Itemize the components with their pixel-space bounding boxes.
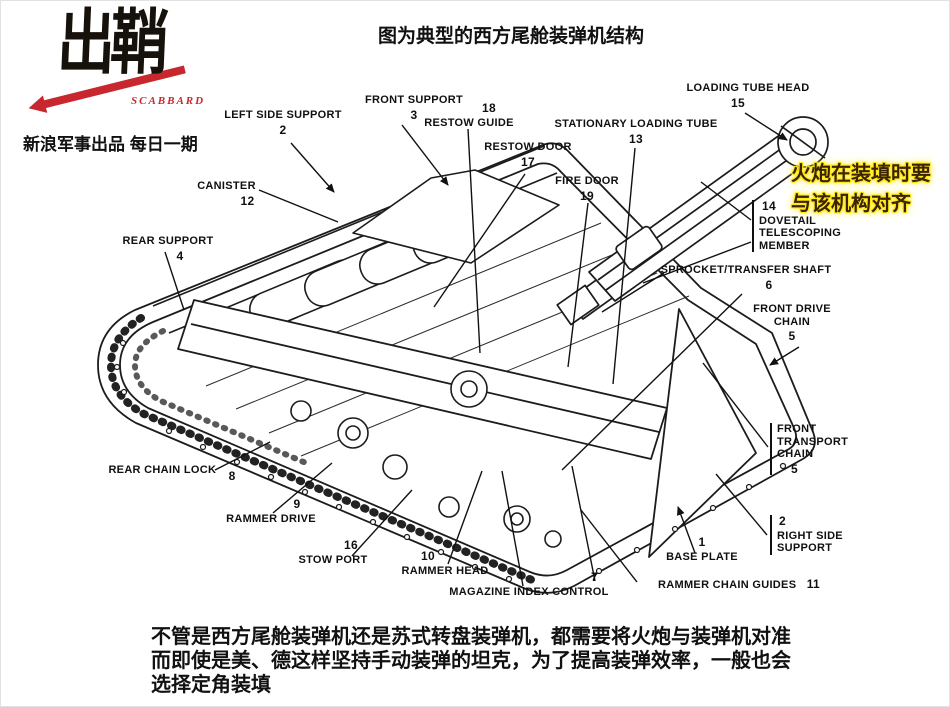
- infographic-page: 出鞘 SCABBARD 新浪军事出品 每日一期 图为典型的西方尾舱装弹机结构 火…: [0, 0, 950, 707]
- label-stationary-loading-tube: STATIONARY LOADING TUBE 13: [546, 118, 726, 145]
- highlight-note-line: 火炮在装填时要: [791, 159, 949, 189]
- label-rammer-chain-guides: RAMMER CHAIN GUIDES 11: [634, 578, 844, 592]
- logo-tagline: 新浪军事出品 每日一期: [23, 130, 198, 155]
- label-canister: CANISTER 12: [189, 180, 264, 207]
- label-rammer-head: RAMMER HEAD 10: [398, 550, 492, 577]
- footer-paragraph: 不管是西方尾舱装弹机还是苏式转盘装弹机，都需要将火炮与装弹机对准 而即使是美、德…: [151, 625, 851, 697]
- logo-wordmark: 出鞘: [56, 7, 165, 80]
- footer-line: 不管是西方尾舱装弹机还是苏式转盘装弹机，都需要将火炮与装弹机对准: [151, 625, 851, 649]
- label-left-side-support: LEFT SIDE SUPPORT 2: [219, 109, 347, 136]
- logo-latin-name: SCABBARD: [131, 95, 205, 107]
- label-stow-port: STOW PORT 16: [294, 539, 372, 566]
- footer-line: 而即使是美、德这样坚持手动装弹的坦克，为了提高装弹效率，一般也会: [151, 649, 851, 673]
- scabbard-logo: 出鞘 SCABBARD: [31, 5, 221, 127]
- label-right-side-support: RIGHT SIDE SUPPORT 2: [770, 515, 843, 555]
- label-dovetail-telescoping-member: DOVETAIL TELESCOPING MEMBER 14: [752, 200, 841, 252]
- page-title: 图为典型的西方尾舱装弹机结构: [311, 21, 711, 48]
- label-fire-door: FIRE DOOR 19: [541, 175, 633, 202]
- label-rear-support: REAR SUPPORT 4: [119, 235, 217, 262]
- label-rear-chain-lock: REAR CHAIN LOCK 8: [97, 463, 247, 477]
- label-restow-guide: RESTOW GUIDE 18: [419, 102, 519, 129]
- label-magazine-index-control: MAGAZINE INDEX CONTROL 7: [439, 586, 619, 599]
- label-rammer-drive: RAMMER DRIVE 9: [224, 498, 318, 525]
- label-front-transport-chain: FRONT TRANSPORT CHAIN 5: [770, 423, 848, 475]
- label-sprocket-transfer-shaft: SPROCKET/TRANSFER SHAFT 6: [656, 264, 836, 291]
- footer-line: 选择定角装填: [151, 673, 851, 697]
- label-restow-door: RESTOW DOOR 17: [479, 141, 577, 168]
- label-front-drive-chain: FRONT DRIVE CHAIN 5: [749, 303, 835, 343]
- label-loading-tube-head: LOADING TUBE HEAD 15: [679, 82, 817, 109]
- label-base-plate: BASE PLATE 1: [661, 536, 743, 563]
